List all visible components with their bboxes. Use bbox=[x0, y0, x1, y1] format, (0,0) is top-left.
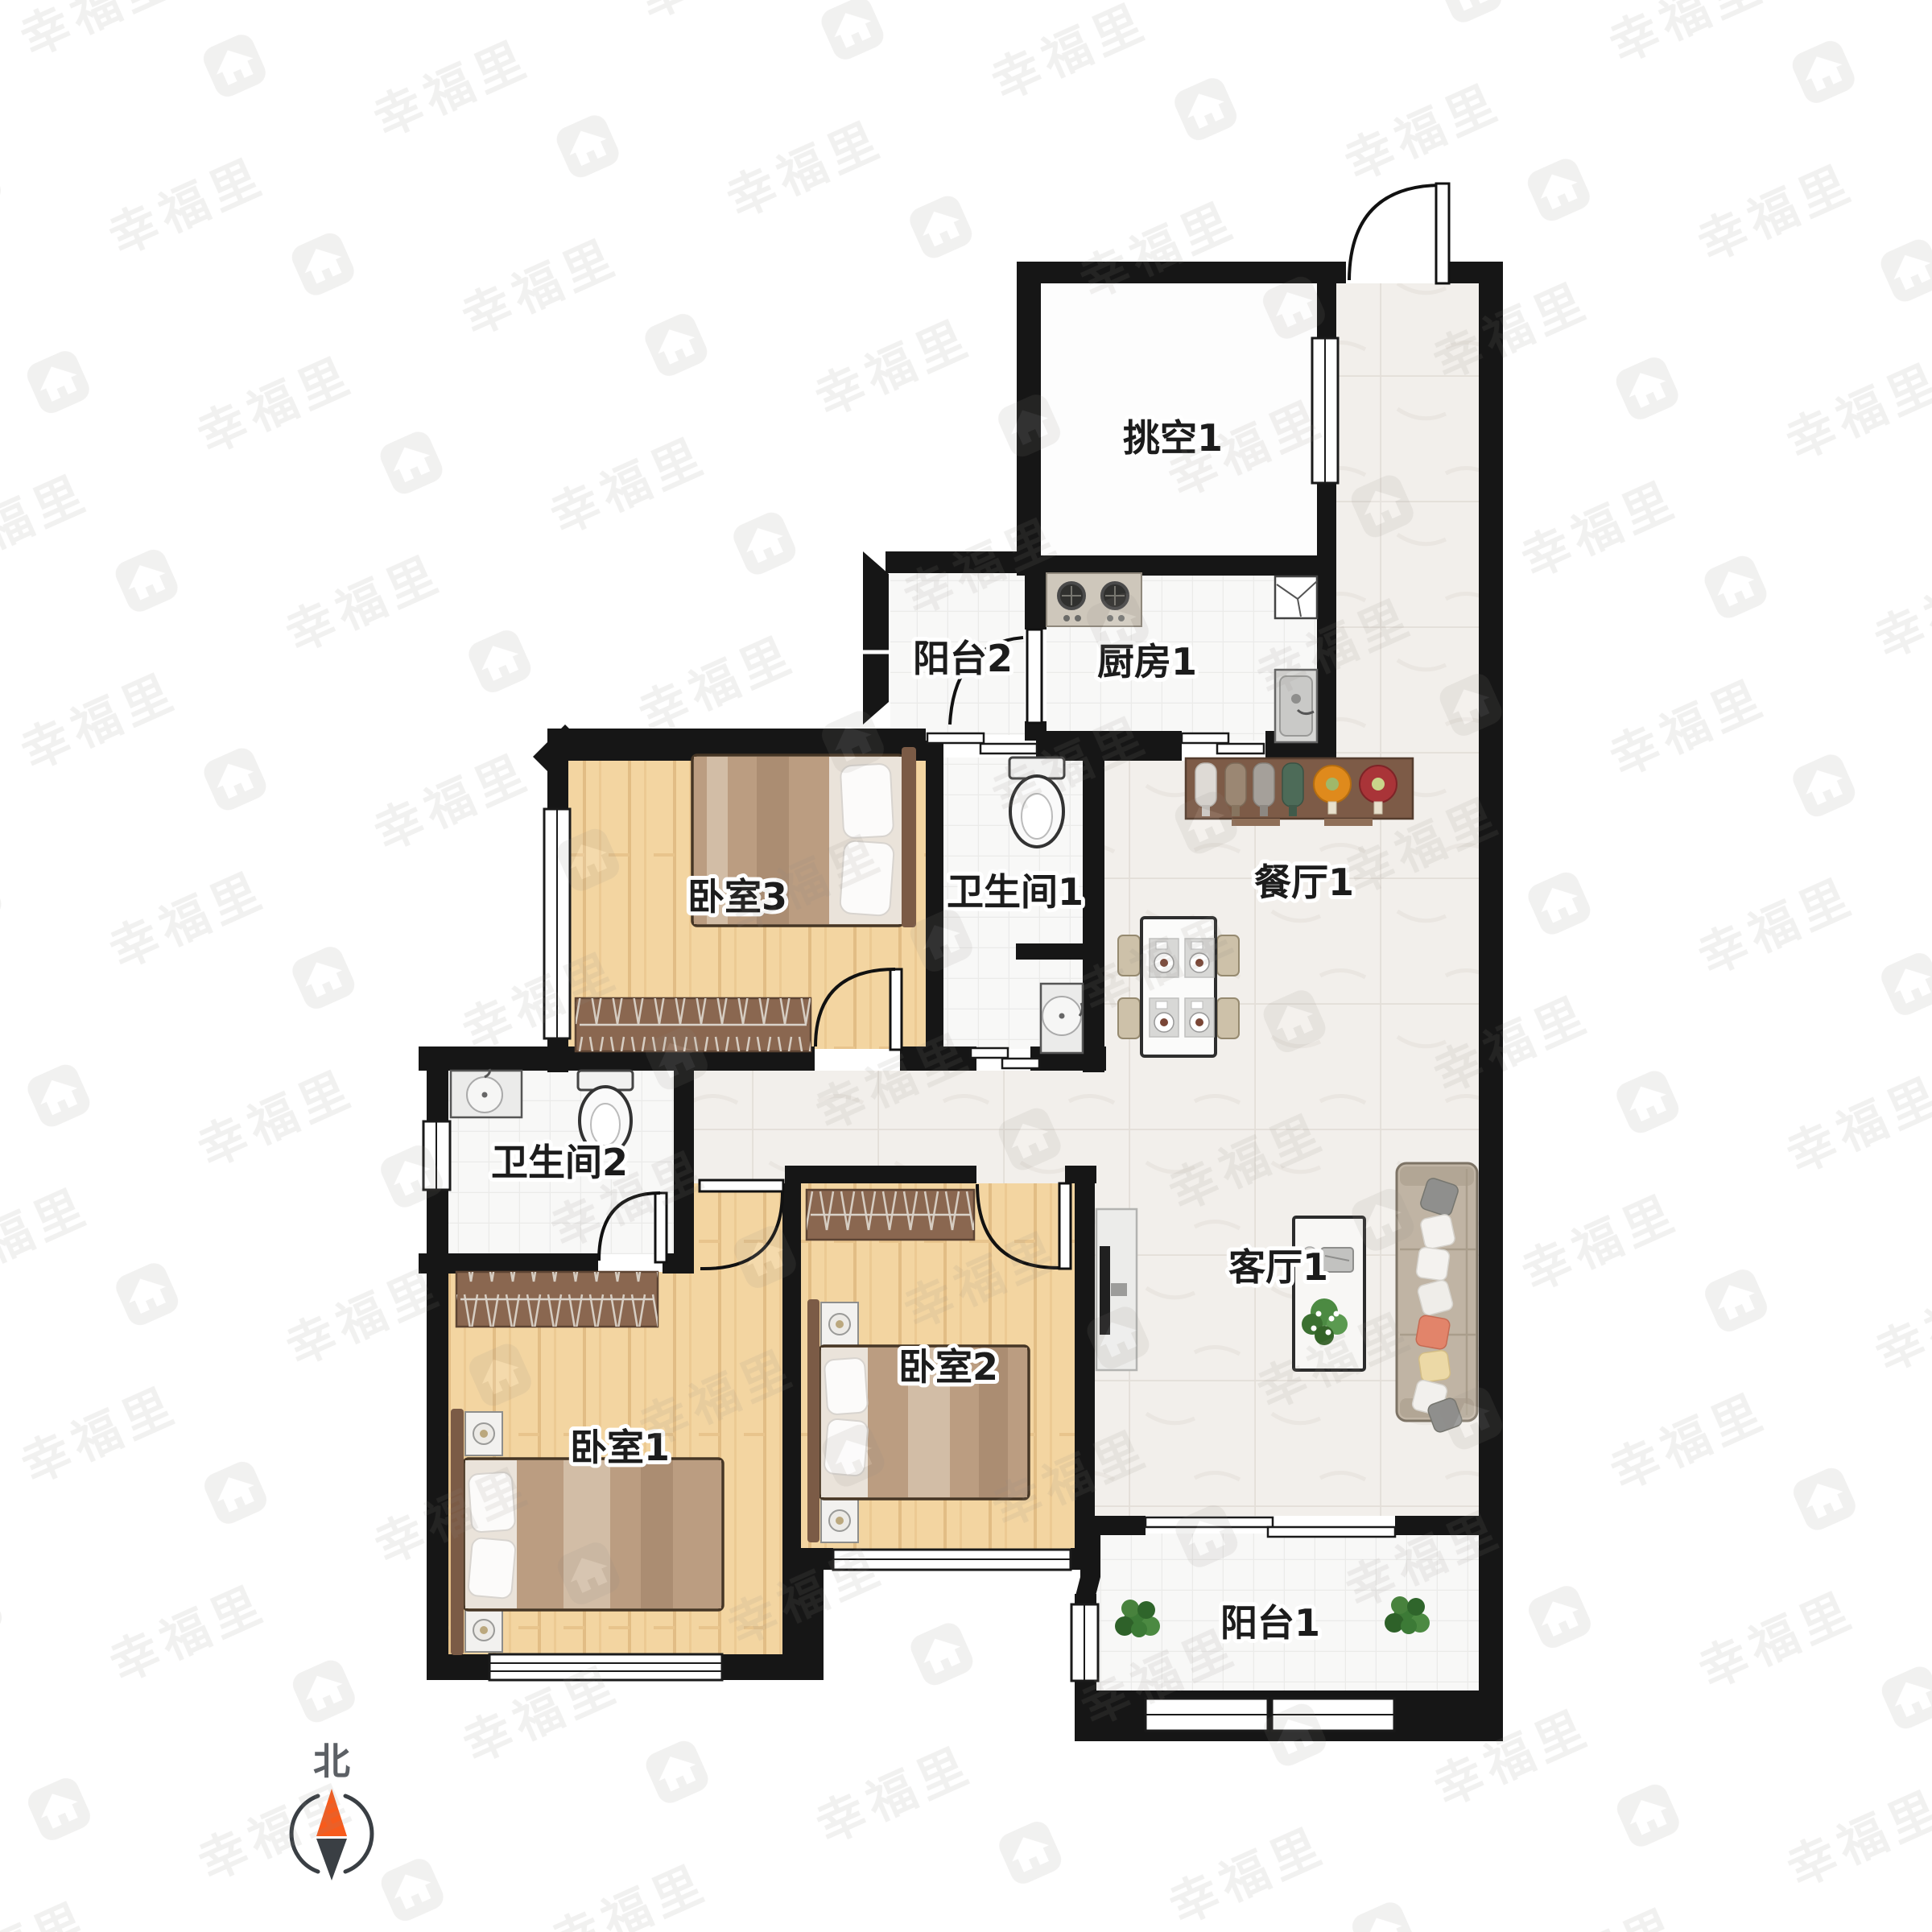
floor-plan-canvas: 幸福里 bbox=[0, 0, 1932, 1932]
floor-plan-svg: 幸福里 bbox=[0, 0, 1932, 1932]
watermark-overlay bbox=[0, 0, 1932, 1932]
